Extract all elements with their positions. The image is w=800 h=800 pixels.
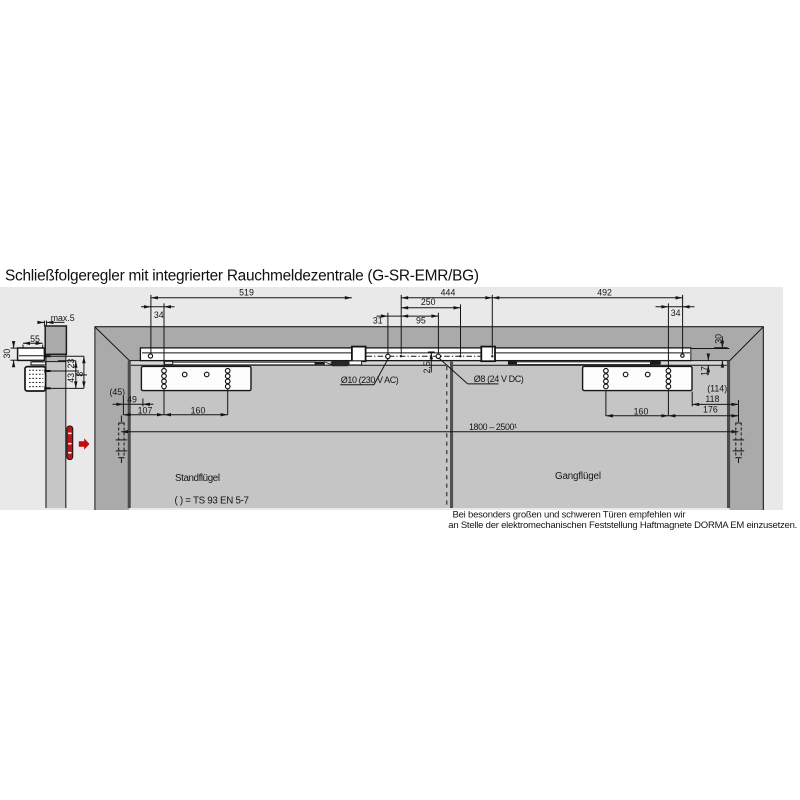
svg-text:17: 17 bbox=[699, 366, 709, 376]
svg-text:Schließfolgeregler mit integri: Schließfolgeregler mit integrierter Rauc… bbox=[5, 268, 479, 285]
svg-text:Standflügel: Standflügel bbox=[175, 473, 220, 484]
svg-text:49: 49 bbox=[127, 395, 137, 405]
svg-text:160: 160 bbox=[191, 405, 206, 415]
svg-text:Bei besonders großen und schwe: Bei besonders großen und schweren Türen … bbox=[453, 509, 686, 520]
svg-text:176: 176 bbox=[703, 405, 718, 415]
svg-text:Gangflügel: Gangflügel bbox=[555, 471, 601, 482]
svg-text:107: 107 bbox=[138, 405, 153, 415]
svg-text:( ) = TS 93 EN 5-7: ( ) = TS 93 EN 5-7 bbox=[175, 496, 250, 507]
svg-text:250: 250 bbox=[421, 297, 436, 307]
svg-text:8: 8 bbox=[75, 372, 85, 377]
svg-text:444: 444 bbox=[441, 288, 456, 298]
svg-text:160: 160 bbox=[634, 407, 649, 417]
svg-text:Ø8 (24 V DC): Ø8 (24 V DC) bbox=[474, 374, 524, 384]
svg-text:(45): (45) bbox=[109, 387, 125, 397]
svg-text:492: 492 bbox=[597, 288, 612, 298]
svg-text:23: 23 bbox=[66, 359, 76, 369]
svg-text:1800 – 2500¹: 1800 – 2500¹ bbox=[469, 422, 517, 432]
svg-text:Ø10 (230 V AC): Ø10 (230 V AC) bbox=[341, 375, 399, 385]
svg-text:118: 118 bbox=[705, 394, 719, 404]
svg-text:34: 34 bbox=[671, 308, 681, 318]
svg-text:519: 519 bbox=[239, 288, 254, 298]
svg-text:34: 34 bbox=[154, 310, 164, 320]
svg-text:2,5: 2,5 bbox=[422, 361, 432, 373]
svg-text:an Stelle der elektromechanisc: an Stelle der elektromechanischen Festst… bbox=[448, 520, 797, 531]
svg-text:30: 30 bbox=[2, 349, 12, 359]
svg-text:95: 95 bbox=[416, 316, 426, 326]
svg-text:max.5: max.5 bbox=[51, 313, 75, 323]
svg-text:(114): (114) bbox=[707, 383, 727, 393]
svg-text:31: 31 bbox=[373, 316, 383, 326]
